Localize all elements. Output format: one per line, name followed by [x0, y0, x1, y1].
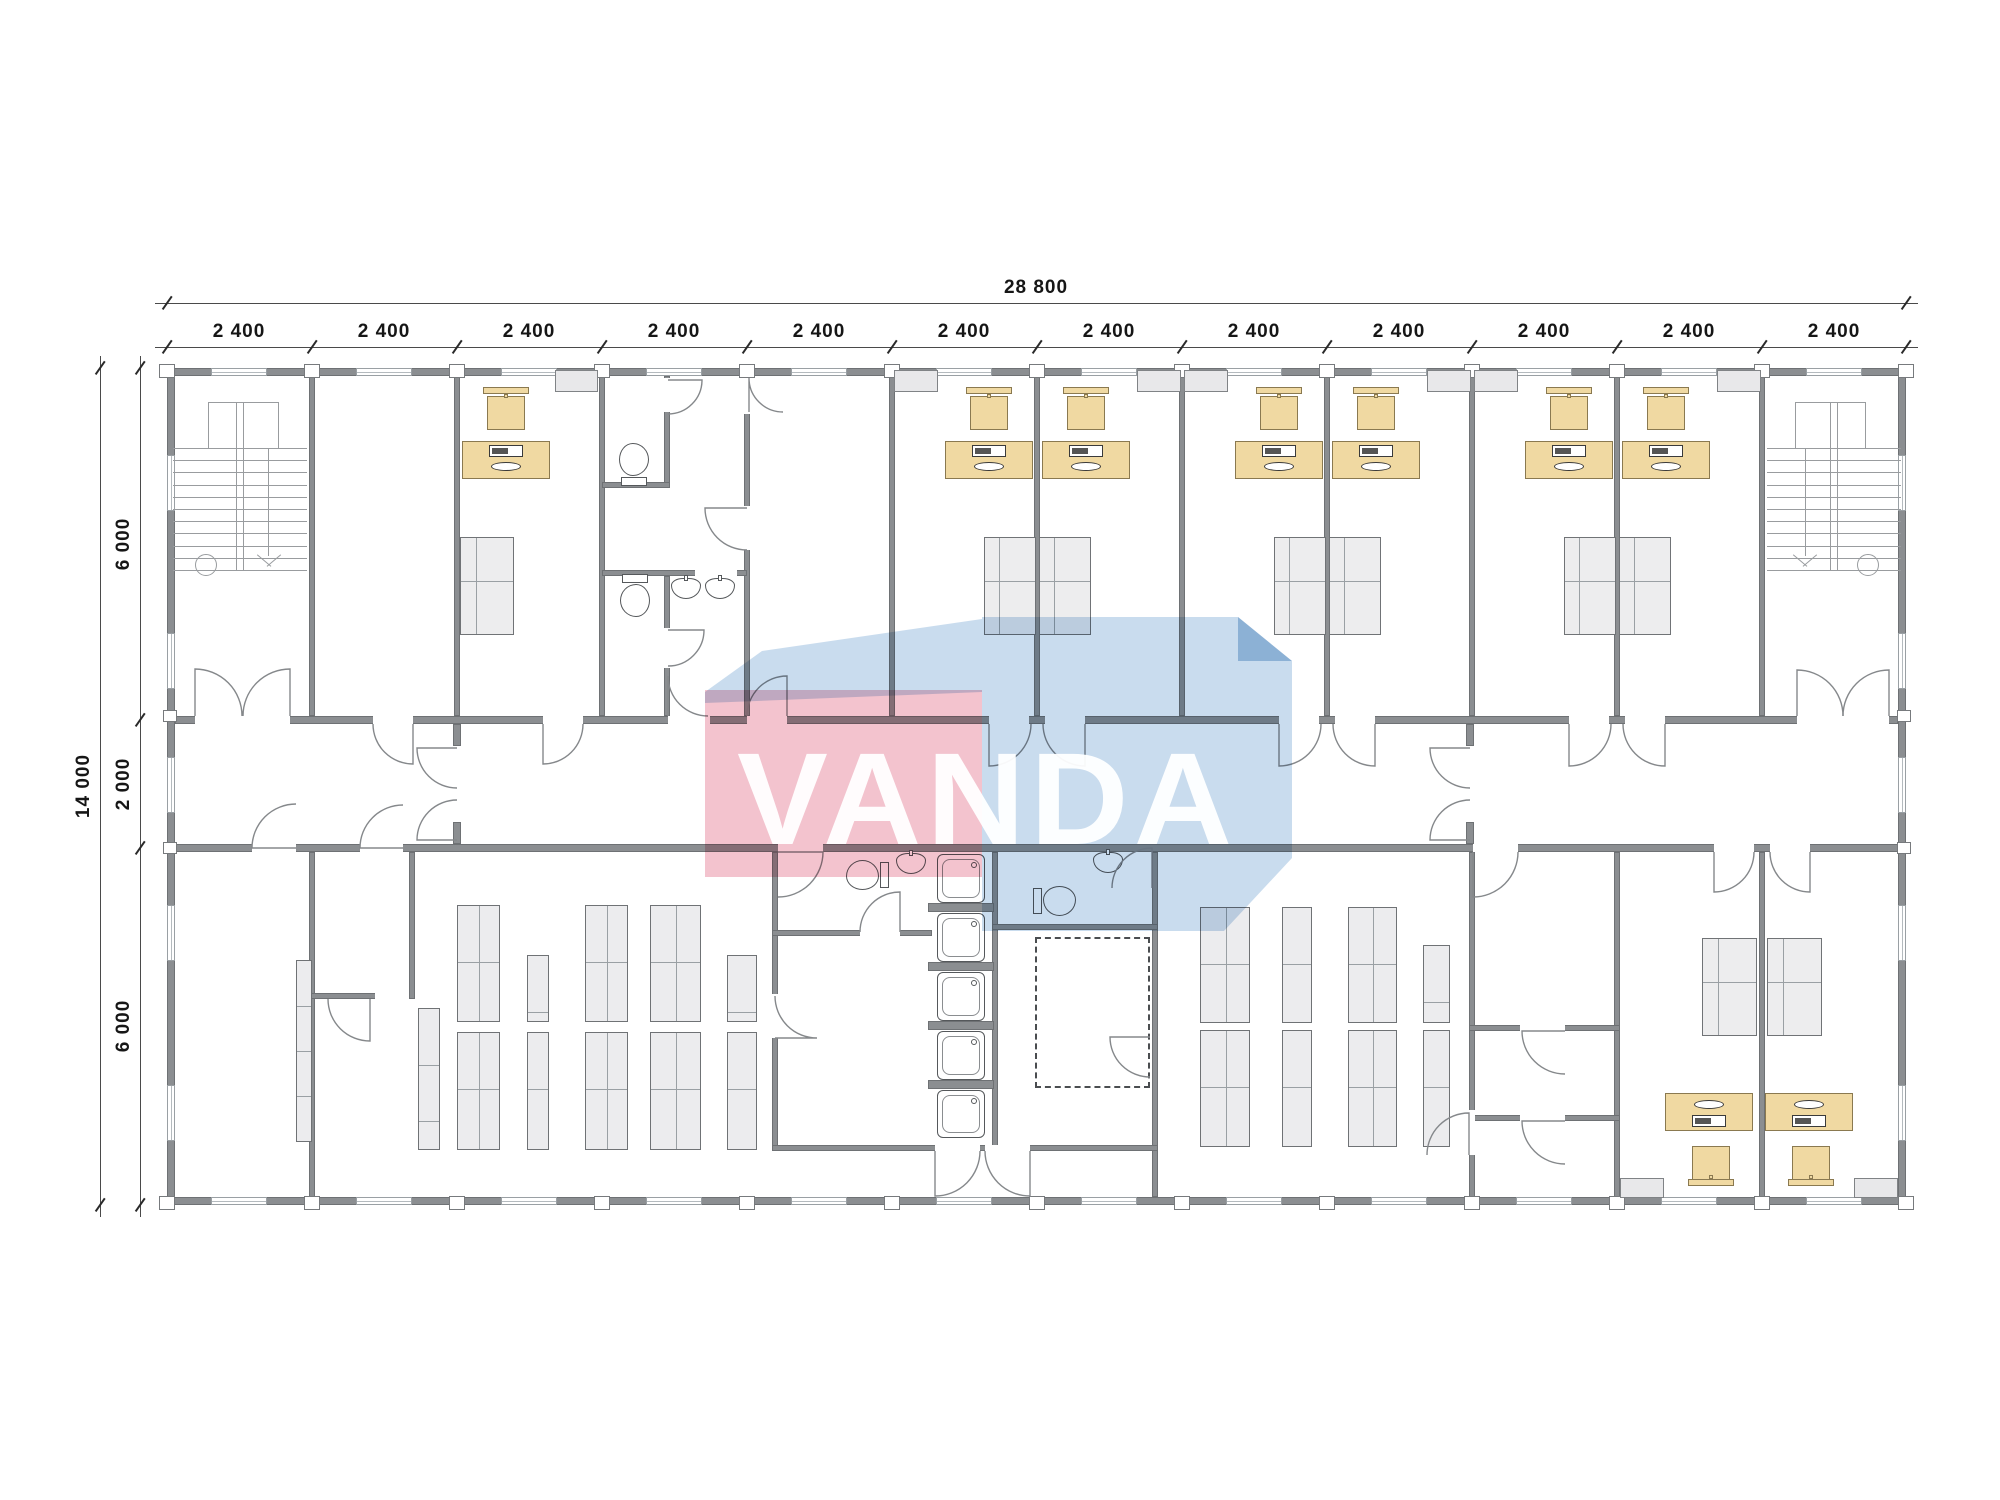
- door-arc: [705, 508, 747, 550]
- dim-label: 14 000: [73, 754, 95, 818]
- dim-label: 2 400: [648, 321, 701, 343]
- floor-plan: 28 8002 4002 4002 4002 4002 4002 4002 40…: [0, 0, 2000, 1500]
- dim-line: [100, 356, 101, 1217]
- door-arc: [543, 724, 583, 764]
- door-arc: [417, 800, 457, 840]
- door-arc: [1522, 1121, 1565, 1164]
- door-arc: [668, 676, 708, 716]
- door-arc: [328, 999, 370, 1041]
- dim-label: 2 400: [213, 321, 266, 343]
- dim-label: 2 400: [1373, 321, 1426, 343]
- dim-label: 2 400: [358, 321, 411, 343]
- door-arc: [195, 669, 242, 716]
- dim-label: 6 000: [113, 1000, 135, 1053]
- door-arc: [243, 669, 290, 716]
- dim-label: 2 400: [1228, 321, 1281, 343]
- dim-label: 6 000: [113, 518, 135, 571]
- dim-label: 28 800: [1004, 277, 1068, 299]
- dim-label: 2 400: [1083, 321, 1136, 343]
- door-arc: [668, 630, 704, 666]
- door-arc: [1427, 1113, 1469, 1155]
- dim-label: 2 400: [1518, 321, 1571, 343]
- door-arc: [360, 805, 403, 848]
- dim-label: 2 000: [113, 758, 135, 811]
- door-arc: [1473, 852, 1518, 897]
- door-arc: [860, 892, 900, 932]
- dim-label: 2 400: [793, 321, 846, 343]
- door-arc: [1714, 852, 1754, 892]
- door-arc: [417, 748, 457, 788]
- door-arc: [373, 724, 413, 764]
- door-arc: [1797, 670, 1843, 716]
- door-arc: [1110, 1037, 1150, 1077]
- door-arc: [252, 804, 296, 848]
- dim-label: 2 400: [1808, 321, 1861, 343]
- dim-label: 2 400: [1663, 321, 1716, 343]
- door-arc: [985, 1151, 1030, 1196]
- door-arc: [1843, 670, 1889, 716]
- door-arc: [935, 1151, 980, 1196]
- door-arc: [1333, 724, 1375, 766]
- dim-label: 2 400: [938, 321, 991, 343]
- door-arc: [1430, 800, 1470, 840]
- door-arc: [749, 378, 783, 412]
- door-arc: [1569, 724, 1611, 766]
- door-arc: [1770, 852, 1810, 892]
- door-arc: [1430, 748, 1470, 788]
- watermark-text: VANDA: [737, 723, 1237, 874]
- dim-line: [140, 356, 141, 1217]
- dim-line: [155, 303, 1918, 304]
- door-arc: [775, 996, 817, 1038]
- dim-label: 2 400: [503, 321, 556, 343]
- door-arc: [668, 380, 702, 414]
- door-arc: [1522, 1031, 1565, 1074]
- door-arc: [1623, 724, 1665, 766]
